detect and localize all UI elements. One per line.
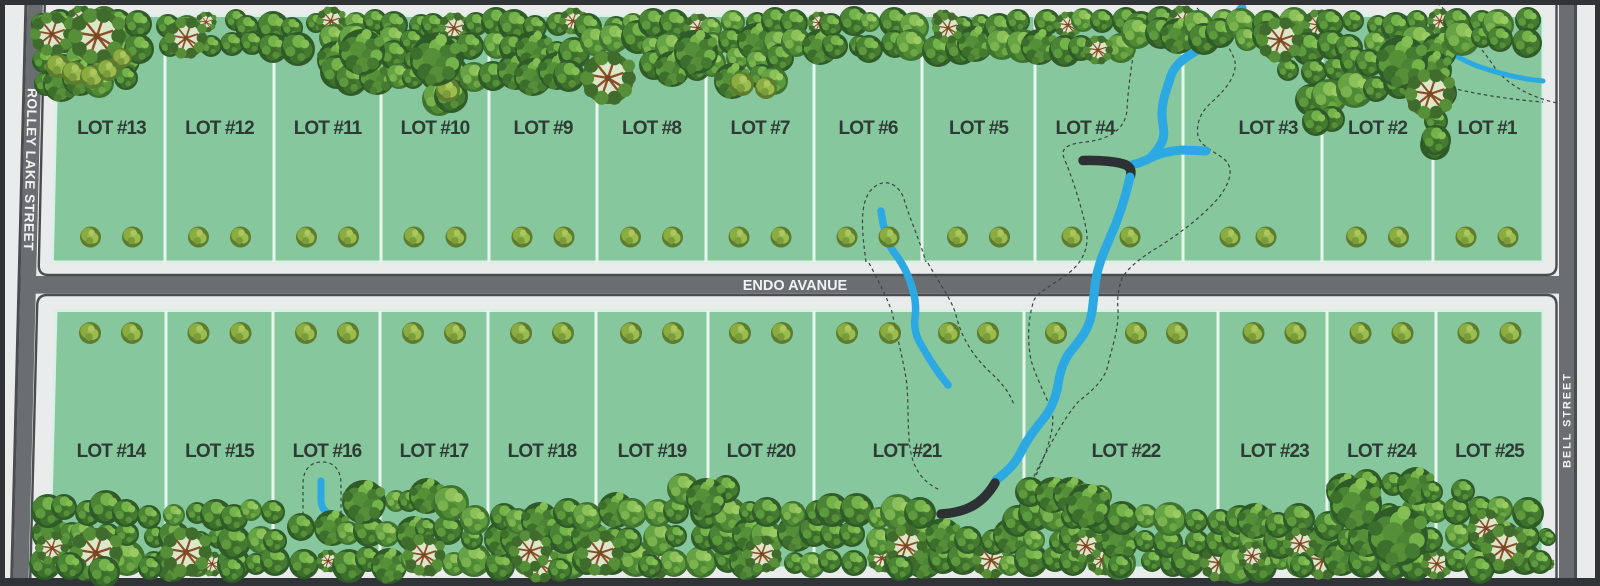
svg-text:LOT #9: LOT #9	[513, 118, 572, 139]
svg-text:LOT #13: LOT #13	[77, 118, 146, 139]
svg-text:LOT #15: LOT #15	[185, 441, 255, 462]
svg-text:BELL STREET: BELL STREET	[1562, 372, 1574, 468]
svg-text:ENDO AVANUE: ENDO AVANUE	[743, 278, 848, 294]
svg-text:LOT #23: LOT #23	[1240, 441, 1309, 462]
svg-text:LOT #10: LOT #10	[401, 118, 470, 139]
svg-text:LOT #16: LOT #16	[293, 441, 362, 462]
svg-text:LOT #2: LOT #2	[1348, 118, 1407, 139]
svg-text:LOT #5: LOT #5	[949, 118, 1009, 139]
svg-text:LOT #18: LOT #18	[508, 441, 577, 462]
svg-text:LOT #1: LOT #1	[1457, 118, 1517, 139]
svg-text:LOT #4: LOT #4	[1055, 118, 1115, 139]
svg-text:LOT #3: LOT #3	[1238, 118, 1297, 139]
svg-text:LOT #22: LOT #22	[1092, 441, 1161, 462]
svg-text:LOT #25: LOT #25	[1455, 441, 1525, 462]
svg-text:LOT #19: LOT #19	[618, 441, 687, 462]
svg-text:LOT #21: LOT #21	[873, 441, 943, 462]
svg-text:LOT #7: LOT #7	[730, 118, 789, 139]
svg-text:LOT #14: LOT #14	[77, 441, 147, 462]
svg-text:LOT #24: LOT #24	[1347, 441, 1417, 462]
svg-text:LOT #6: LOT #6	[838, 118, 897, 139]
svg-text:LOT #17: LOT #17	[400, 441, 469, 462]
svg-text:LOT #11: LOT #11	[294, 118, 363, 139]
svg-text:LOT #8: LOT #8	[622, 118, 681, 139]
svg-text:LOT #12: LOT #12	[185, 118, 254, 139]
svg-text:LOT #20: LOT #20	[727, 441, 796, 462]
